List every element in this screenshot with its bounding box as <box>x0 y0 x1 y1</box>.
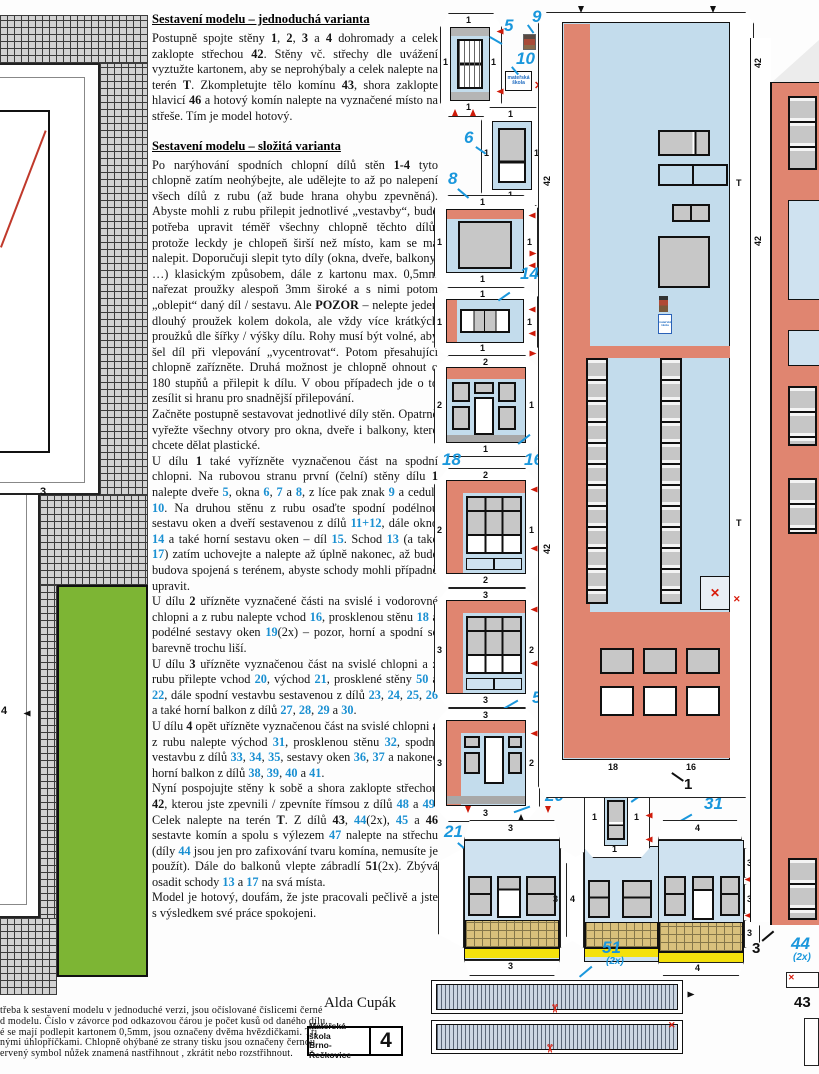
window-pane <box>508 752 522 774</box>
text-segment: U dílu <box>152 594 189 608</box>
flap-number: 4 <box>695 963 700 973</box>
red-arrow-icon <box>531 546 538 552</box>
red-arrow-icon <box>531 731 538 737</box>
sign-text-line1: mateřská <box>658 321 671 325</box>
part1-figure-print <box>659 296 668 312</box>
part1-body <box>562 22 730 760</box>
flap-number: 1 <box>484 148 489 158</box>
part50-sill-strip <box>466 678 522 690</box>
window-row <box>468 632 520 656</box>
part21-label: 21 <box>444 822 463 842</box>
text-segment: , <box>270 485 277 499</box>
part7-body <box>604 794 628 846</box>
part3-window-stack <box>788 96 817 170</box>
terrain-flap-label-3: 3 <box>40 486 46 498</box>
text-segment: T <box>277 813 285 827</box>
label-leader <box>518 434 531 444</box>
text-segment: . Zkompletujte tělo komínu <box>191 78 342 92</box>
flap-number: 1 <box>443 57 448 67</box>
text-segment: a také horní sestavu oken – díl <box>164 532 331 546</box>
text-segment: Model je hotový, doufám, že jste pracova… <box>152 890 438 920</box>
part50-flaps <box>434 588 540 708</box>
text-segment: a <box>283 485 296 499</box>
text-segment: 13 <box>387 532 399 546</box>
flap-number: 2 <box>483 575 488 585</box>
flap-number: 1 <box>634 812 639 822</box>
text-segment: 21 <box>314 672 326 686</box>
window-pane <box>498 406 516 430</box>
part1-salmon-bottom <box>590 612 730 758</box>
window-pane <box>508 736 522 748</box>
text-segment: U dílu <box>152 719 186 733</box>
red-arrow-icon <box>468 356 474 363</box>
railing-bars <box>436 984 678 1010</box>
part20-flaps <box>434 708 540 822</box>
part21-body <box>464 840 560 960</box>
text-segment: 38 <box>248 766 260 780</box>
red-arrow-icon <box>446 590 452 597</box>
part1-cutout-area: ✕ <box>700 576 730 610</box>
text-segment: 30 <box>341 703 353 717</box>
text-segment: a <box>409 797 423 811</box>
red-arrow-icon <box>530 351 537 357</box>
red-arrow-icon <box>529 307 536 313</box>
scissors-icon: ✂ <box>548 1004 561 1013</box>
red-arrow-icon <box>529 213 536 219</box>
text-segment: ) zatím uchovejte a nalepte až úplně nak… <box>152 547 438 592</box>
flap-number: 3 <box>483 590 488 600</box>
window-pane <box>464 736 480 748</box>
flap-number: 1 <box>466 102 471 112</box>
part14-windows <box>460 309 510 333</box>
mid-wall-flap-left <box>566 852 584 948</box>
red-arrow-icon <box>531 607 538 613</box>
part14-label: 14 <box>520 264 539 284</box>
flap-number: 4 <box>695 823 700 833</box>
flap-number: 2 <box>529 758 534 768</box>
label-leader <box>762 931 774 942</box>
part5-label: 5 <box>504 16 513 36</box>
heading-simple-variant: Sestavení modelu – jednoduchá varianta <box>152 12 438 27</box>
part14-salmon-band <box>447 300 457 342</box>
text-segment: 42 <box>251 47 263 61</box>
window-pane <box>643 648 677 674</box>
label-leader <box>458 188 470 198</box>
flap-number: 1 <box>592 812 597 822</box>
part7-window <box>607 800 625 840</box>
text-segment: 36 <box>354 750 366 764</box>
red-arrow-icon <box>487 206 493 213</box>
red-arrow-icon <box>745 913 752 919</box>
text-segment: 37 <box>373 750 385 764</box>
red-arrow-icon <box>531 487 538 493</box>
window-row <box>468 656 520 672</box>
window-row <box>468 536 520 552</box>
text-segment: 1 <box>432 469 438 483</box>
part50-label: 50 <box>532 688 551 708</box>
text-segment: 47 <box>329 828 341 842</box>
text-segment: 31 <box>273 735 285 749</box>
part6-label: 6 <box>464 128 473 148</box>
part31-tab <box>744 920 760 948</box>
text-segment: 44 <box>354 813 366 827</box>
text-segment: 51 <box>366 859 378 873</box>
red-cut-mark: ✕ <box>788 973 795 982</box>
part31-yellow-stripe <box>659 952 743 962</box>
part31-door <box>692 876 714 920</box>
window-pane <box>452 382 470 402</box>
text-segment: 32 <box>385 735 397 749</box>
flap-number: 1 <box>529 400 534 410</box>
part50-salmon-left <box>447 601 463 693</box>
paragraph-complex-7: Nyní pospojujte stěny k sobě a shora zak… <box>152 781 438 890</box>
window-row <box>468 512 520 536</box>
label-leader <box>490 36 503 44</box>
part1-flap-backing <box>538 12 754 798</box>
label-leader <box>678 814 693 823</box>
part8-body <box>446 209 524 273</box>
text-segment: 1-4 <box>394 158 410 172</box>
text-segment: . <box>321 766 324 780</box>
text-segment: U dílu <box>152 657 189 671</box>
black-arrow-icon <box>24 711 31 717</box>
part18-body <box>446 480 526 574</box>
part31-window-left <box>664 876 686 916</box>
mid-wall-body <box>584 846 660 962</box>
text-segment: POZOR <box>315 298 359 312</box>
part20-step <box>447 796 525 804</box>
text-segment: a <box>308 31 326 45</box>
mid-wall-window-left <box>588 880 610 918</box>
text-segment: Postupně spojte stěny <box>152 31 271 45</box>
text-segment: , sestavy oken <box>280 750 353 764</box>
part31-flap-bottom <box>658 962 744 976</box>
text-segment: , kterou jste zpevnili / zpevníte římsou… <box>164 797 396 811</box>
red-arrow-icon <box>529 331 536 337</box>
part18-sill-strip <box>466 558 522 570</box>
flap-number: 4 <box>570 894 575 904</box>
text-segment: . Schod <box>344 532 387 546</box>
text-segment: 33 <box>231 750 243 764</box>
text-segment: nalepte dveře <box>152 485 223 499</box>
part44-count-label: (2x) <box>793 952 811 963</box>
text-segment: , prosklenou stěnu <box>322 610 417 624</box>
part21-tile-apron <box>465 920 559 948</box>
part43-label: 43 <box>794 994 811 1011</box>
footer-line: ervený symbol nůžek znamená nastřihnout … <box>0 1049 438 1060</box>
flap-number-42: 42 <box>753 236 763 246</box>
label-leader <box>504 700 519 709</box>
part31-tile-apron <box>659 922 743 952</box>
window-pane <box>686 686 720 716</box>
footer-line: d modelu. Číslo v závorce pod odkazovou … <box>0 1017 438 1028</box>
red-arrow-icon <box>452 109 458 116</box>
part16-label: 16 <box>524 450 543 470</box>
part18-window-grid <box>466 496 522 554</box>
flap-number-42: 42 <box>753 58 763 68</box>
flap-number: 1 <box>483 444 488 454</box>
part31-tab <box>744 884 760 914</box>
text-segment: , východ <box>267 672 315 686</box>
text-segment: na svá místa. <box>259 875 326 889</box>
flap-number: 3 <box>483 808 488 818</box>
text-segment: tyto chlopně zatím neohýbejte, ale uděle… <box>152 158 438 312</box>
part21-window-right <box>526 876 556 916</box>
part1-window-c <box>658 236 710 288</box>
flap-number: 3 <box>747 858 752 868</box>
part8-label: 8 <box>448 169 457 189</box>
flap-number-T: T <box>736 518 742 528</box>
part10-label: 10 <box>516 49 535 69</box>
red-arrow-icon <box>497 89 504 95</box>
part16-flaps <box>434 355 540 457</box>
flap-number: 2 <box>483 470 488 480</box>
sign-text-line2: škola <box>661 324 669 328</box>
text-segment: 39 <box>267 766 279 780</box>
paragraph-complex-4: U dílu 2 uřízněte vyznačené části na svi… <box>152 594 438 656</box>
building-footprint-wide <box>0 63 100 495</box>
railing-bars <box>436 1024 678 1050</box>
text-segment: a ceduli <box>395 485 438 499</box>
part1-window-b <box>672 204 710 222</box>
text-segment: Začněte postupně sestavovat jednotlivé d… <box>152 407 438 452</box>
flap-number-16: 16 <box>686 762 696 772</box>
part51-count-label: (2x) <box>606 956 624 967</box>
part51-railing-strip-2 <box>431 1020 683 1054</box>
flap-number: 1 <box>529 525 534 535</box>
part43-piece <box>804 1018 819 1066</box>
flap-number: 1 <box>508 190 513 200</box>
text-segment: , prosklenou stěnu <box>285 735 384 749</box>
text-segment: 15 <box>332 532 344 546</box>
window-pane <box>643 686 677 716</box>
label-leader <box>527 24 534 33</box>
part21-door <box>497 876 521 918</box>
part31-label: 31 <box>704 794 723 814</box>
pavement-checker-leftband <box>40 585 57 978</box>
text-segment: , okna <box>229 485 264 499</box>
text-segment: 48 <box>397 797 409 811</box>
red-arrow-icon <box>545 806 551 813</box>
part1-sign-print: mateřská škola <box>658 314 672 334</box>
part3-flap-margin <box>750 38 771 922</box>
part31-tab <box>744 848 760 878</box>
text-segment: 29 <box>317 703 329 717</box>
text-segment: 43 <box>342 78 354 92</box>
scissors-icon: ✂ <box>543 1044 556 1053</box>
text-segment: Nyní pospojujte stěny k sobě a shora zak… <box>152 781 438 795</box>
text-segment: 17 <box>246 875 258 889</box>
part3-window-stack <box>788 858 817 920</box>
window-pane <box>498 382 516 402</box>
part18-salmon-top <box>447 481 525 493</box>
mid-wall-tile-apron <box>585 922 658 948</box>
flap-number: 2 <box>529 645 534 655</box>
part31-body <box>658 840 744 962</box>
text-segment: , dále okno <box>382 516 439 530</box>
text-segment: , prosklené stěny <box>327 672 416 686</box>
red-cut-mark: ✕ <box>668 1020 676 1031</box>
instructions-column: Sestavení modelu – jednoduchá varianta P… <box>152 12 438 994</box>
text-segment: 18 <box>417 610 429 624</box>
part1-window-column-left <box>586 358 608 604</box>
flap-number: 1 <box>480 197 485 207</box>
paragraph-complex-1: Po narýhování spodních chlopní dílů stěn… <box>152 158 438 408</box>
window-pane <box>474 382 494 394</box>
text-segment: T <box>183 78 191 92</box>
pavement-checker-top <box>0 15 148 63</box>
text-segment: 27 <box>280 703 292 717</box>
paragraph-complex-6: U dílu 4 opět uřízněte vyznačenou část n… <box>152 719 438 781</box>
text-segment: a <box>408 813 426 827</box>
part1-vent-grille <box>658 164 728 186</box>
part14-flaps <box>434 287 538 357</box>
footprint-bevel-wide <box>0 77 85 483</box>
part21-flap-bottom <box>464 960 560 976</box>
part3-window-stack <box>788 386 817 446</box>
footprint-bevel-narrow <box>0 495 27 905</box>
text-segment: 24 <box>388 688 400 702</box>
part44-piece <box>786 972 819 988</box>
label-leader <box>458 842 470 853</box>
red-cut-mark: ✕ <box>733 594 741 605</box>
flap-number: 1 <box>612 786 617 796</box>
text-segment: U dílu <box>152 454 196 468</box>
part9-label: 9 <box>532 7 541 27</box>
text-segment: 50 <box>416 672 428 686</box>
text-segment: 41 <box>309 766 321 780</box>
flap-number: 3 <box>483 695 488 705</box>
flap-number: 3 <box>553 894 558 904</box>
part18-flaps <box>434 468 540 588</box>
text-segment: 22 <box>152 688 164 702</box>
grass-area <box>57 585 148 977</box>
part7-label: 7 <box>652 776 661 796</box>
text-segment: a <box>235 875 247 889</box>
red-arrow-icon <box>592 774 598 781</box>
papercraft-sheet-page: 3 4 Sestavení modelu – jednoduchá varian… <box>0 0 819 1074</box>
terrain-flap-label-4: 4 <box>1 705 7 717</box>
part51-label: 51 <box>602 938 621 958</box>
part5-flaps <box>440 13 502 117</box>
text-segment: , <box>345 813 354 827</box>
text-segment: 44 <box>178 844 190 858</box>
text-segment: 13 <box>222 875 234 889</box>
building-footprint-narrow <box>0 495 40 918</box>
flap-number: 1 <box>480 343 485 353</box>
part8-window <box>458 221 512 269</box>
red-arrow-icon <box>646 813 653 819</box>
flap-number: 1 <box>527 237 532 247</box>
part1-window-a <box>658 130 710 156</box>
part5-sill <box>451 92 489 100</box>
part21-flap-top <box>464 820 560 840</box>
sign-text-line1: mateřská <box>508 76 530 82</box>
text-segment: , <box>400 688 407 702</box>
text-segment: . <box>354 703 357 717</box>
window-pane <box>452 406 470 430</box>
flap-number: 2 <box>483 357 488 367</box>
part20-salmon-top <box>447 721 525 733</box>
flap-number: 3 <box>508 961 513 971</box>
part50-body <box>446 600 526 694</box>
text-segment: . Z dílů <box>285 813 333 827</box>
text-segment: 10 <box>152 501 164 515</box>
text-segment: 16 <box>310 610 322 624</box>
window-pane <box>686 648 720 674</box>
part20-label: 20 <box>545 786 564 806</box>
text-segment: 26 <box>426 688 438 702</box>
window-pane <box>600 648 634 674</box>
text-segment: a také horní balkon z dílů <box>152 703 280 717</box>
red-cut-mark: ✕ <box>534 79 543 92</box>
black-arrow-icon <box>710 6 716 13</box>
flap-number: 1 <box>480 274 485 284</box>
part18-label: 18 <box>442 450 461 470</box>
part16-door <box>474 397 494 435</box>
text-segment: 11+12 <box>351 516 382 530</box>
pavement-checker-right <box>100 63 148 495</box>
part18-salmon-left <box>447 481 463 573</box>
paragraph-complex-5: U dílu 3 uřízněte vyznačenou část na svi… <box>152 657 438 719</box>
part21-yellow-stripe <box>465 948 559 958</box>
flap-number: 3 <box>483 710 488 720</box>
red-arrow-icon <box>497 29 504 35</box>
pavement-checker-mid <box>40 495 148 585</box>
part21-flap-left <box>438 848 464 948</box>
flap-number: 1 <box>491 57 496 67</box>
part6-window <box>498 128 526 183</box>
text-segment: 28 <box>299 703 311 717</box>
red-arrow-icon <box>745 877 752 883</box>
text-segment: , <box>381 688 388 702</box>
text-segment: 45 <box>396 813 408 827</box>
part21-window-left <box>468 876 492 916</box>
part51-railing-strip-1 <box>431 980 683 1014</box>
flap-number: 3 <box>747 928 752 938</box>
text-segment: , <box>419 688 426 702</box>
paragraph-complex-3: U dílu 1 také vyřízněte vyznačenou část … <box>152 454 438 594</box>
window-row <box>468 618 520 632</box>
red-arrow-icon <box>470 109 476 116</box>
flap-number: 1 <box>466 15 471 25</box>
part50-window-grid <box>466 616 522 674</box>
flap-number: 1 <box>480 289 485 299</box>
part1-salmon-left <box>564 24 590 758</box>
window-row <box>468 498 520 512</box>
text-segment: 34 <box>249 750 261 764</box>
part3-wall <box>770 82 819 925</box>
red-arrow-icon <box>503 206 509 213</box>
label-leader <box>631 794 643 803</box>
part3-label: 3 <box>752 940 760 957</box>
part31-window-right <box>720 876 740 916</box>
red-arrow-icon <box>529 263 536 269</box>
part14-body <box>446 299 524 343</box>
heading-complex-variant: Sestavení modelu – složitá varianta <box>152 139 438 154</box>
text-segment: 14 <box>152 532 164 546</box>
part6-flaps <box>481 107 545 206</box>
flap-number: 1 <box>527 317 532 327</box>
part1-window-column-right <box>660 358 682 604</box>
part1-label: 1 <box>684 776 692 793</box>
part3-window-stack <box>788 478 817 534</box>
part3-glass-panel <box>788 330 819 366</box>
flap-number: 1 <box>612 844 617 854</box>
red-arrow-icon <box>530 251 537 257</box>
flap-number: 3 <box>508 823 513 833</box>
label-leader <box>672 772 684 781</box>
